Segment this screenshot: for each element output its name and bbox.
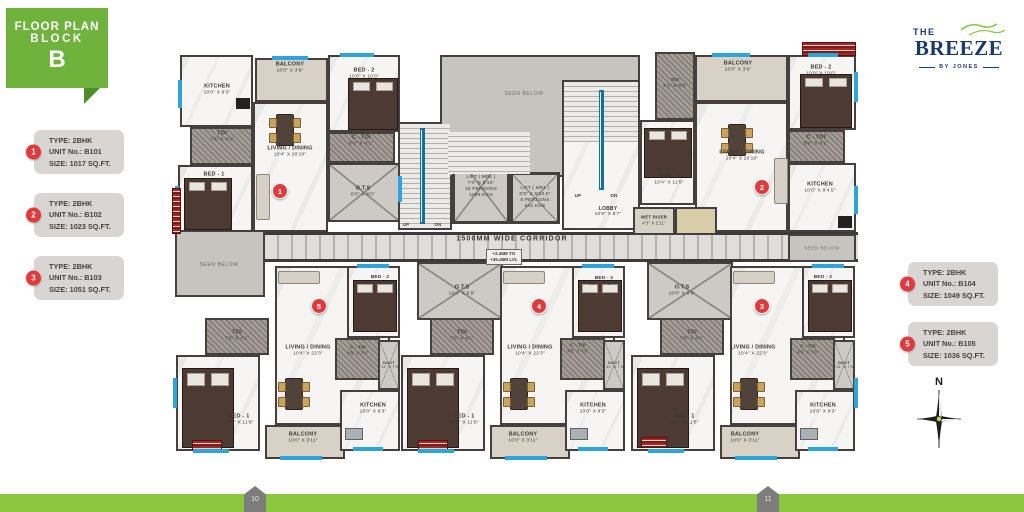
label-b105-kitchen: KITCHEN10'0" X 8'3" <box>360 403 387 416</box>
label-b101-kitchen: KITCHEN10'0" X 8'3" <box>204 84 231 97</box>
legend-unit: UNIT No.: B102 <box>49 209 120 220</box>
label-b102-balcony: BALCONY10'0" X 3'6" <box>724 61 753 74</box>
window-accent <box>353 447 383 451</box>
window-accent <box>808 53 838 57</box>
logo-rule-right <box>983 67 999 68</box>
label-b104-ctoi: C - TOI4'5" X 7'6" <box>567 343 588 354</box>
window-accent <box>340 53 374 57</box>
label-up-left: UP <box>403 222 410 228</box>
window-accent <box>808 447 838 451</box>
label-b102-wet-riser: WET RISER4'3" X 2'11" <box>641 215 667 226</box>
floor-plan: 1500MM WIDE CORRIDOR +2.45M TO +35.45M L… <box>172 28 860 480</box>
legend-size: SIZE: 1017 SQ.FT. <box>49 158 120 169</box>
legend-type: TYPE: 2BHK <box>49 135 120 146</box>
window-accent <box>712 53 750 57</box>
window-accent <box>357 264 389 268</box>
window-accent <box>854 72 858 102</box>
legend-marker-4: 4 <box>900 276 915 291</box>
label-b103-ctoi: C - TOI4'5" X 7'6" <box>797 344 818 355</box>
legend-unit: UNIT No.: B103 <box>49 272 120 283</box>
sofa-furniture <box>733 271 775 284</box>
legend-unit: UNIT No.: B101 <box>49 146 120 157</box>
label-b104-balcony: BALCONY10'0" X 3'11" <box>508 432 537 445</box>
kitchen-sink <box>570 428 588 440</box>
compass: N <box>913 376 965 456</box>
stair-seen-below-treads <box>448 132 530 174</box>
kitchen-sink <box>800 428 818 440</box>
label-b104-bed1: BED - 110'0" X 11'8" <box>449 414 478 427</box>
window-accent <box>812 264 844 268</box>
legend-card-b101: 1 TYPE: 2BHK UNIT No.: B101 SIZE: 1017 S… <box>34 130 124 174</box>
unit-marker-3: 3 <box>754 298 770 314</box>
stair-left-treads <box>400 124 450 228</box>
room-b102-closet <box>675 207 717 235</box>
label-b105-duct: DUCT4'11" X 7'0" <box>378 360 399 370</box>
label-b103-bed2: BED - 210'0" X 10'0" <box>808 275 838 287</box>
label-b105-balcony: BALCONY10'0" X 3'11" <box>288 432 317 445</box>
label-b105-bed1: BED - 110'0" X 11'8" <box>224 414 253 427</box>
dining-table <box>510 378 528 410</box>
label-b104-bed2: BED - 210'0" X 10'0" <box>589 276 619 288</box>
badge-fold-ribbon <box>84 88 100 104</box>
legend-size: SIZE: 1051 SQ.FT. <box>49 284 120 295</box>
label-b104-ots: O.T.S10'0" X 6'9" <box>449 285 476 298</box>
legend-marker-1: 1 <box>26 144 41 159</box>
window-accent <box>418 449 454 453</box>
label-b104-toi: TOI7'6" X 4'1" <box>450 330 474 343</box>
planter-strip <box>641 437 667 448</box>
window-accent <box>505 456 547 460</box>
seen-below-core-label: SEEN BELOW <box>504 91 543 97</box>
seen-below-right-label: SEEN BELOW <box>804 245 839 251</box>
footer-green-bar <box>0 494 1024 512</box>
fire-riser-strip <box>172 188 181 234</box>
corridor-level-line2: +35.45M LVL <box>490 257 518 263</box>
room-b104-kitchen <box>565 390 625 451</box>
window-accent <box>648 449 684 453</box>
legend-card-b102: 2 TYPE: 2BHK UNIT No.: B102 SIZE: 1023 S… <box>34 193 124 237</box>
bed-furniture <box>644 128 692 178</box>
label-up-right: UP <box>575 193 582 199</box>
unit-marker-5: 5 <box>311 298 327 314</box>
label-b102-toi: TOI4'1" X 8'0" <box>663 78 687 90</box>
label-b104-duct: DUCT4'11" X 7'0" <box>603 360 624 370</box>
legend-marker-2: 2 <box>26 207 41 222</box>
badge-line1: FLOOR PLAN <box>6 8 108 33</box>
page-tab-11: 11 <box>757 486 779 512</box>
label-b101-ots: O.T.S8'0" X 8'0" <box>351 186 375 199</box>
label-b102-ctoi: C - TOI8'0" X 4'1" <box>804 135 828 148</box>
label-dn-right: DN <box>610 193 617 199</box>
label-b101-living: LIVING / DINING10'4" X 20'10" <box>267 146 312 159</box>
window-accent <box>173 378 177 408</box>
label-b105-toi: TOI7'6" X 4'1" <box>225 330 249 343</box>
window-accent <box>272 56 308 60</box>
sofa-furniture <box>278 271 320 284</box>
brochure-page: { "colors":{"brand_green":"#6fb33c","foo… <box>0 0 1024 512</box>
label-b102-bed2: BED - 210'0" X 10'0" <box>806 65 836 78</box>
legend-unit: UNIT No.: B105 <box>923 338 994 349</box>
label-b103-kitchen: KITCHEN10'0" X 8'3" <box>810 403 837 416</box>
legend-card-b103: 3 TYPE: 2BHK UNIT No.: B103 SIZE: 1051 S… <box>34 256 124 300</box>
logo-name: BREEZE <box>903 36 1015 61</box>
label-b103-living: LIVING / DINING10'4" X 22'3" <box>730 345 775 358</box>
window-accent <box>398 176 402 202</box>
label-b101-bed2: BED - 210'0" X 10'0" <box>349 68 379 81</box>
badge-line2: BLOCK <box>6 33 108 45</box>
legend-marker-3: 3 <box>26 270 41 285</box>
label-b105-bed2: BED - 210'0" X 10'0" <box>365 275 395 287</box>
bed-furniture <box>407 368 459 448</box>
window-accent <box>178 80 182 108</box>
dining-table <box>740 378 758 410</box>
stove-icon <box>236 98 250 109</box>
sofa-furniture <box>774 158 788 204</box>
label-b105-living: LIVING / DINING10'4" X 22'3" <box>285 345 330 358</box>
stair-left-rail <box>420 128 425 224</box>
logo-tagline: BY JONES <box>903 64 1015 70</box>
window-accent <box>280 456 322 460</box>
badge-line3: B <box>6 46 108 74</box>
sofa-furniture <box>503 271 545 284</box>
unit-marker-4: 4 <box>531 298 547 314</box>
label-dn-left: DN <box>434 222 441 228</box>
label-b103-toi: TOI7'6" X 4'1" <box>680 330 704 343</box>
stove-icon <box>838 216 852 228</box>
compass-north-label: N <box>913 376 965 388</box>
label-b104-kitchen: KITCHEN10'0" X 8'3" <box>580 403 607 416</box>
legend-type: TYPE: 2BHK <box>923 267 994 278</box>
label-b101-ctoi: C - TOI8'0" X 4'1" <box>349 135 373 148</box>
label-b102-bed1: BED - 110'4" X 11'8" <box>654 174 683 187</box>
label-b101-balcony: BALCONY10'0" X 3'6" <box>276 62 305 75</box>
label-b102-living: LIVING / DINING10'4" X 20'10" <box>719 150 764 163</box>
legend-size: SIZE: 1023 SQ.FT. <box>49 221 120 232</box>
label-lobby: LOBBY10'8" X 5'7" <box>595 206 622 218</box>
bed-furniture <box>184 178 232 230</box>
sofa-furniture <box>256 174 270 220</box>
kitchen-sink <box>345 428 363 440</box>
window-accent <box>735 456 777 460</box>
label-lift-1: LIFT ( MRL )7'0" X 5'10"16 PERSONS1088 K… <box>465 175 497 199</box>
window-accent <box>193 449 229 453</box>
bed-furniture <box>353 280 397 332</box>
room-b105-kitchen <box>340 390 400 451</box>
legend-size: SIZE: 1036 SQ.FT. <box>923 350 994 361</box>
bed-furniture <box>182 368 234 448</box>
logo-by-text: BY JONES <box>939 64 979 70</box>
dining-table <box>276 114 294 146</box>
legend-card-b105: 5 TYPE: 2BHK UNIT No.: B105 SIZE: 1036 S… <box>908 322 998 366</box>
label-b103-bed1: BED - 110'0" X 11'8" <box>669 414 698 427</box>
page-tab-10: 10 <box>244 486 266 512</box>
legend-type: TYPE: 2BHK <box>923 327 994 338</box>
window-accent <box>854 378 858 408</box>
bed-furniture <box>637 368 689 448</box>
label-lift-2: LIFT ( MRL )6'5" X 6'10.5"8 PERSONS544 K… <box>519 186 550 210</box>
label-b103-balcony: BALCONY10'0" X 3'11" <box>730 432 759 445</box>
room-b103-kitchen <box>795 390 855 451</box>
label-b101-toi: TOI7'6" X 4'1" <box>210 131 234 144</box>
label-b104-living: LIVING / DINING10'4" X 22'3" <box>507 345 552 358</box>
legend-card-b104: 4 TYPE: 2BHK UNIT No.: B104 SIZE: 1049 S… <box>908 262 998 306</box>
unit-marker-1: 1 <box>272 183 288 199</box>
window-accent <box>854 186 858 214</box>
stair-right-rail <box>599 90 604 190</box>
bed-furniture <box>800 74 852 128</box>
bed-furniture <box>808 280 852 332</box>
brand-logo: THE BREEZE BY JONES <box>903 20 1015 84</box>
legend-type: TYPE: 2BHK <box>49 198 120 209</box>
legend-type: TYPE: 2BHK <box>49 261 120 272</box>
label-b105-ctoi: C - TOI4'5" X 7'6" <box>347 345 368 356</box>
legend-size: SIZE: 1049 SQ.FT. <box>923 290 994 301</box>
corridor-level-box: +2.45M TO +35.45M LVL <box>486 249 522 265</box>
legend-unit: UNIT No.: B104 <box>923 278 994 289</box>
seen-below-left-label: SEEN BELOW <box>199 262 238 268</box>
bed-furniture <box>348 78 398 130</box>
unit-marker-2: 2 <box>754 179 770 195</box>
window-accent <box>582 264 614 268</box>
compass-rose-icon <box>913 388 965 450</box>
logo-rule-left <box>919 67 935 68</box>
corridor-label: 1500MM WIDE CORRIDOR <box>456 236 568 245</box>
label-b102-kitchen: KITCHEN10'0" X 8'4.5" <box>804 182 835 195</box>
dining-table <box>285 378 303 410</box>
window-accent <box>578 447 608 451</box>
legend-marker-5: 5 <box>900 336 915 351</box>
label-b103-duct: DUCT4'11" X 7'0" <box>833 360 854 370</box>
label-b101-bed1: BED - 110'0" X 10'2" <box>199 172 229 185</box>
block-badge: FLOOR PLAN BLOCK B <box>6 8 108 88</box>
label-b103-ots: O.T.S10'0" X 6'9" <box>669 285 696 298</box>
